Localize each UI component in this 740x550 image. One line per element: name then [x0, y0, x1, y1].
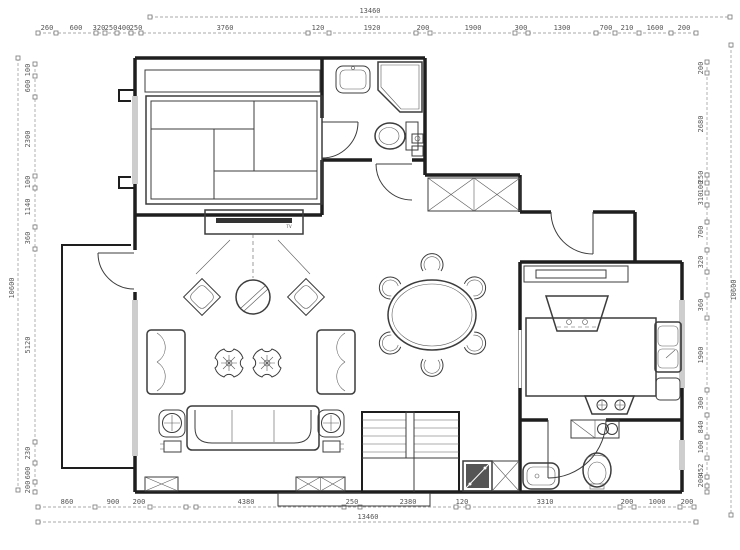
- dim-labels-bottom: 8609002004380250238012033102001000200: [61, 498, 694, 506]
- sink: [336, 66, 370, 93]
- round-ottoman: [236, 280, 270, 314]
- dim-label: 1920: [364, 24, 381, 32]
- dim-label: 250: [105, 24, 118, 32]
- dim-overall-left: 10600: [8, 277, 16, 298]
- balcony-outline: [62, 245, 135, 468]
- dim-tick: [694, 520, 698, 524]
- armchair-left: [184, 279, 221, 316]
- dining-table: [388, 280, 476, 350]
- bottom-cabinet-left: [145, 477, 178, 491]
- bottom-cabinet-right: [296, 477, 345, 491]
- window-living-balcony: [131, 300, 139, 456]
- dim-tick: [184, 505, 188, 509]
- dim-tick: [33, 247, 37, 251]
- dim-tick: [705, 270, 709, 274]
- shower-tray: [523, 463, 559, 489]
- single-sofa-left: [147, 330, 185, 394]
- entry-door: [551, 212, 593, 254]
- dim-tick: [705, 191, 709, 195]
- dim-label: 4380: [238, 498, 255, 506]
- dim-tick: [705, 181, 709, 185]
- dim-label: 230: [24, 447, 32, 460]
- dim-labels-right: 2002680250100310700320360190030084010045…: [697, 62, 705, 488]
- bathroom-bottom: [463, 420, 619, 491]
- dim-tick: [705, 248, 709, 252]
- dim-tick: [705, 220, 709, 224]
- dim-tick: [613, 31, 617, 35]
- dim-label: 840: [697, 421, 705, 434]
- dim-tick: [705, 413, 709, 417]
- dim-tick: [705, 293, 709, 297]
- dim-tick: [33, 480, 37, 484]
- dim-overall-right: 10600: [730, 279, 738, 300]
- dim-tick: [33, 490, 37, 494]
- kitchen-sink: [655, 322, 681, 400]
- balcony: [62, 245, 135, 468]
- dim-tick: [33, 225, 37, 229]
- dim-tick: [327, 31, 331, 35]
- sofa-long: [187, 406, 319, 450]
- dim-label: 100: [697, 441, 705, 454]
- dim-tick: [33, 95, 37, 99]
- dim-tick: [33, 461, 37, 465]
- window-bedroom-left: [131, 96, 139, 184]
- dim-label: 860: [61, 498, 74, 506]
- bathroom-door: [376, 164, 412, 200]
- dim-tick: [16, 56, 20, 60]
- dim-tick: [728, 15, 732, 19]
- dim-tick: [33, 62, 37, 66]
- dim-label: 3310: [537, 498, 554, 506]
- stove: [585, 396, 634, 414]
- closet-hatch: [145, 70, 320, 92]
- dim-tick: [729, 43, 733, 47]
- dim-label: 320: [93, 24, 106, 32]
- dining-chair: [375, 273, 402, 301]
- dim-tick: [729, 513, 733, 517]
- plant-table-right: [253, 349, 281, 377]
- dim-tick: [637, 31, 641, 35]
- dim-tick: [33, 74, 37, 78]
- dim-label: 360: [24, 232, 32, 245]
- plant-table-left: [215, 349, 243, 377]
- dim-label: 320: [697, 256, 705, 269]
- bedroom-tatami: [145, 70, 358, 204]
- dim-tick: [93, 505, 97, 509]
- window-kitchen-pass: [519, 330, 522, 388]
- bedroom-door: [322, 122, 358, 158]
- dim-tick: [33, 186, 37, 190]
- dim-labels-left: 100600230010011403605120230600200: [24, 64, 32, 494]
- dim-tick: [705, 173, 709, 177]
- dim-label: 900: [107, 498, 120, 506]
- dim-tick: [16, 488, 20, 492]
- dining-area: [375, 254, 490, 377]
- single-sofa-right: [317, 330, 355, 394]
- utility-shaft: [492, 461, 519, 491]
- dim-label: 1900: [697, 347, 705, 364]
- dim-label: 600: [24, 80, 32, 93]
- walls-bedroom-bathroom: [135, 58, 425, 215]
- dim-label: 600: [70, 24, 83, 32]
- dim-tick: [705, 203, 709, 207]
- dim-tick: [33, 440, 37, 444]
- dim-tick: [705, 484, 709, 488]
- dim-label: 1140: [24, 199, 32, 216]
- dim-tick: [669, 31, 673, 35]
- tv-label: TV: [286, 224, 292, 230]
- dining-table-inner: [392, 284, 472, 346]
- dim-tick: [148, 505, 152, 509]
- kitchen: [524, 266, 681, 414]
- dim-label: 3760: [217, 24, 234, 32]
- dim-label: 300: [515, 24, 528, 32]
- dim-tick: [36, 505, 40, 509]
- dim-label: 1000: [649, 498, 666, 506]
- dining-chair: [463, 330, 490, 358]
- dim-tick: [33, 174, 37, 178]
- dim-labels-top: 2606003202504002503760120192020019003001…: [41, 24, 691, 32]
- dining-chair: [463, 273, 490, 301]
- dim-tick: [705, 490, 709, 494]
- dim-label: 452: [697, 464, 705, 477]
- dim-label: 200: [697, 475, 705, 488]
- dim-tick: [705, 316, 709, 320]
- dim-label: 600: [24, 467, 32, 480]
- toilet-bottom: [583, 453, 611, 489]
- tatami-platform: [146, 96, 322, 204]
- floor-plan-svg: 2606003202504002503760120192020019003001…: [0, 0, 740, 550]
- dim-tick: [36, 31, 40, 35]
- dim-overall-bottom: 13460: [357, 513, 378, 521]
- dim-label: 200: [697, 62, 705, 75]
- side-table-right: [318, 410, 344, 452]
- dim-tick: [54, 31, 58, 35]
- dim-tick: [705, 60, 709, 64]
- living-room: TV: [145, 210, 430, 506]
- dim-overall-top: 13460: [359, 7, 380, 15]
- dim-label: 210: [621, 24, 634, 32]
- tv: [216, 218, 292, 223]
- dim-tick: [705, 475, 709, 479]
- kitchen-island: [526, 318, 656, 396]
- bathroom-top: [336, 62, 423, 200]
- armchair-right: [288, 279, 325, 316]
- dim-label: 200: [417, 24, 430, 32]
- dim-label: 1600: [647, 24, 664, 32]
- dim-tick: [148, 15, 152, 19]
- dim-label: 2300: [24, 131, 32, 148]
- dim-label: 700: [697, 226, 705, 239]
- dim-label: 120: [456, 498, 469, 506]
- kitchen-counter-top: [524, 266, 628, 282]
- stair-rail: [406, 412, 414, 458]
- dim-label: 250: [130, 24, 143, 32]
- window-kitchen-right: [678, 300, 686, 388]
- dining-chair: [421, 254, 443, 271]
- dim-label: 260: [41, 24, 54, 32]
- entry-closet: [428, 178, 520, 211]
- dim-label: 200: [681, 498, 694, 506]
- dim-tick: [705, 388, 709, 392]
- corner-shower: [378, 62, 422, 112]
- dimension-lines: [18, 17, 731, 522]
- dim-tick: [194, 505, 198, 509]
- washer-cabinet: [571, 420, 619, 438]
- dim-label: 100: [697, 181, 705, 194]
- dim-label: 1900: [465, 24, 482, 32]
- dim-label: 5120: [24, 337, 32, 354]
- dim-label: 120: [312, 24, 325, 32]
- dim-tick: [306, 31, 310, 35]
- dim-label: 400: [118, 24, 131, 32]
- dining-chair: [421, 359, 443, 376]
- dim-tick: [705, 435, 709, 439]
- window-bathroom-right: [678, 440, 686, 470]
- dim-tick: [694, 31, 698, 35]
- dim-label: 100: [24, 176, 32, 189]
- dim-label: 700: [600, 24, 613, 32]
- entry: [428, 178, 593, 254]
- balcony-door: [98, 253, 134, 289]
- dim-label: 360: [697, 299, 705, 312]
- dim-label: 2380: [400, 498, 417, 506]
- dim-tick: [594, 31, 598, 35]
- dim-label: 100: [24, 64, 32, 77]
- dim-tick: [705, 456, 709, 460]
- dim-tick: [705, 71, 709, 75]
- dim-label: 200: [678, 24, 691, 32]
- dining-chair: [375, 330, 402, 358]
- range-hood: [546, 296, 608, 331]
- water-heater: [463, 461, 492, 491]
- dim-tick: [36, 520, 40, 524]
- dim-label: 300: [697, 397, 705, 410]
- dim-label: 1300: [554, 24, 571, 32]
- staircase: [362, 412, 459, 492]
- floor-plan-canvas: 2606003202504002503760120192020019003001…: [0, 0, 740, 550]
- dim-label: 200: [24, 481, 32, 494]
- dim-label: 310: [697, 193, 705, 206]
- dim-label: 200: [621, 498, 634, 506]
- side-table-left: [159, 410, 185, 452]
- dim-label: 250: [346, 498, 359, 506]
- dim-label: 2680: [697, 116, 705, 133]
- dim-label: 200: [133, 498, 146, 506]
- walls-entry-kitchen: [425, 175, 682, 492]
